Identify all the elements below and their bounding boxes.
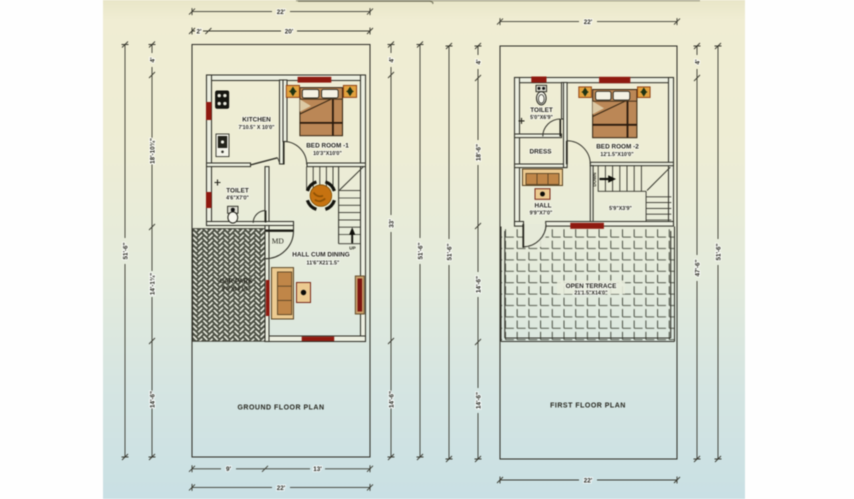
svg-text:51'-6": 51'-6" xyxy=(417,242,424,259)
svg-text:14'-1¾": 14'-1¾" xyxy=(148,273,156,295)
svg-text:11'6"X21'1.5": 11'6"X21'1.5" xyxy=(307,261,340,267)
svg-text:OPEN TERRACE: OPEN TERRACE xyxy=(566,283,618,290)
svg-text:KITCHEN: KITCHEN xyxy=(242,117,271,124)
svg-text:DRESS: DRESS xyxy=(529,149,552,156)
svg-text:14'-6": 14'-6" xyxy=(475,276,482,293)
svg-text:14'-6": 14'-6" xyxy=(388,391,395,408)
svg-text:12'1.5"X10'0": 12'1.5"X10'0" xyxy=(600,152,634,158)
svg-text:47'-6": 47'-6" xyxy=(694,259,701,276)
svg-text:21'1.5"X14'0": 21'1.5"X14'0" xyxy=(574,291,608,297)
svg-text:18'-10¾": 18'-10¾" xyxy=(148,138,156,164)
svg-text:CAR PARK: CAR PARK xyxy=(219,278,253,285)
svg-text:4': 4' xyxy=(694,59,701,65)
svg-text:BED ROOM -1: BED ROOM -1 xyxy=(306,143,349,150)
svg-text:FIRST FLOOR PLAN: FIRST FLOOR PLAN xyxy=(550,403,626,410)
svg-text:4': 4' xyxy=(388,57,395,63)
svg-text:HALL CUM DINING: HALL CUM DINING xyxy=(292,252,349,259)
svg-text:5'0"X6'9": 5'0"X6'9" xyxy=(530,115,553,121)
svg-text:2': 2' xyxy=(197,28,203,35)
svg-text:14'-6": 14'-6" xyxy=(149,391,156,408)
svg-text:22': 22' xyxy=(584,19,593,26)
svg-text:51'-6": 51'-6" xyxy=(715,243,722,260)
svg-text:13': 13' xyxy=(313,466,322,473)
svg-text:4'6"X7'0": 4'6"X7'0" xyxy=(226,196,249,202)
svg-text:7'10.5" X 10'0": 7'10.5" X 10'0" xyxy=(238,125,275,131)
svg-text:14'-6": 14'-6" xyxy=(475,392,482,409)
svg-text:DOWN: DOWN xyxy=(592,173,597,187)
svg-text:5'9"X3'9": 5'9"X3'9" xyxy=(609,206,632,212)
svg-text:22': 22' xyxy=(277,485,286,492)
svg-text:22': 22' xyxy=(584,477,593,484)
svg-text:4': 4' xyxy=(149,57,156,63)
svg-text:10'3"X10'0": 10'3"X10'0" xyxy=(313,151,342,157)
svg-text:9'9"X7'0": 9'9"X7'0" xyxy=(530,211,553,217)
svg-text:33': 33' xyxy=(388,219,395,228)
svg-text:UP: UP xyxy=(349,246,355,251)
svg-text:TOILET: TOILET xyxy=(226,188,249,195)
svg-text:18'-6": 18'-6" xyxy=(475,144,482,161)
svg-text:51'-6": 51'-6" xyxy=(446,243,453,260)
svg-text:51'-6": 51'-6" xyxy=(122,242,129,259)
svg-text:HALL: HALL xyxy=(534,203,551,210)
svg-text:BED ROOM -2: BED ROOM -2 xyxy=(596,144,639,151)
svg-text:TOILET: TOILET xyxy=(530,107,553,114)
svg-text:9': 9' xyxy=(226,466,232,473)
svg-text:22': 22' xyxy=(277,9,286,16)
svg-text:9'0"X14'1.5": 9'0"X14'1.5" xyxy=(222,287,251,293)
svg-text:4': 4' xyxy=(475,59,482,65)
svg-text:GROUND FLOOR PLAN: GROUND FLOOR PLAN xyxy=(237,405,324,412)
svg-text:MD: MD xyxy=(272,237,285,246)
svg-text:20': 20' xyxy=(285,28,294,35)
